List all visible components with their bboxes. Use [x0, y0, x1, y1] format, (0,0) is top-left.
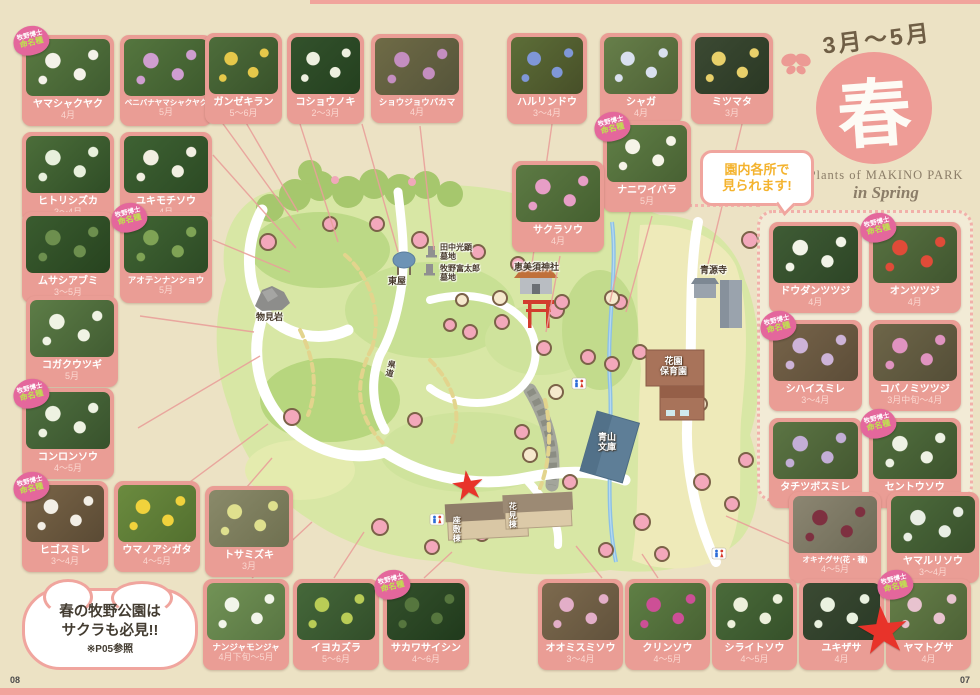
plant-months: 5月 — [124, 285, 208, 296]
plant-card-top_mid-1: コショウノキ2〜3月 — [287, 33, 364, 124]
plant-months: 3〜4月 — [26, 556, 104, 567]
group-tosamizuki: トサミズキ3月 — [205, 486, 293, 577]
plant-name: ドウダンツツジ — [773, 286, 858, 297]
plant-name: アオテンナンショウ — [124, 276, 208, 285]
plant-photo — [209, 490, 289, 547]
plant-card-shaga-1: ミツマタ3月 — [691, 33, 773, 124]
plant-name: シライトソウ — [716, 643, 793, 654]
star-marker-map: ★ — [447, 464, 488, 509]
plant-photo — [773, 226, 858, 283]
map-label-line: 牧野富太郎 — [440, 264, 480, 273]
plant-months: 5月 — [30, 371, 114, 382]
plant-card-top_left-0: 牧野博士命名種ヤマシャクヤク4月 — [22, 35, 114, 126]
plant-name: シハイスミレ — [773, 384, 858, 395]
group-haru: ハルリンドウ3〜4月 — [507, 33, 587, 124]
plant-card-haru-0: ハルリンドウ3〜4月 — [507, 33, 587, 124]
plant-name: タチツボスミレ — [773, 482, 858, 493]
plant-photo — [26, 216, 110, 273]
top-edge-strip — [310, 0, 980, 4]
plant-card-kogaku-0: コガクウツギ5月 — [26, 296, 118, 387]
plant-card-top_mid-0: ガンゼキラン5〜6月 — [205, 33, 282, 124]
plant-months: 5月 — [124, 107, 208, 118]
map-label-line: 墓地 — [440, 273, 480, 282]
star-marker-bottom: ★ — [851, 595, 915, 665]
plant-photo — [695, 37, 769, 94]
plant-months: 3〜4月 — [773, 395, 858, 406]
plant-photo — [297, 583, 375, 640]
plant-card-top_left-1: ベニバナヤマシャクヤク5月 — [120, 35, 212, 126]
group-right-panel: ドウダンツツジ4月牧野博士命名種オンツツジ4月牧野博士命名種シハイスミレ3〜4月… — [757, 210, 973, 502]
plant-months: 4〜6月 — [387, 654, 465, 665]
callout-line: サクラも必見!! — [62, 622, 159, 641]
plant-months: 3〜4月 — [511, 108, 583, 119]
plant-months: 4〜5月 — [793, 564, 877, 575]
plant-card-bottom_left-2: 牧野博士命名種サカワサイシン4〜6月 — [383, 579, 469, 670]
group-top-left: 牧野博士命名種ヤマシャクヤク4月ベニバナヤマシャクヤク5月ヒトリシズカ3〜4月ユ… — [22, 35, 212, 223]
group-sakuraso: サクラソウ4月 — [512, 161, 604, 252]
plant-name: ヤマルリソウ — [891, 556, 975, 567]
plant-months: 4月 — [26, 110, 110, 121]
subtitle-line1: Plants of MAKINO PARK — [796, 168, 976, 183]
plant-months: 4月 — [873, 297, 958, 308]
plant-photo — [793, 496, 877, 553]
plant-months: 4〜5月 — [629, 654, 706, 665]
group-shaga: シャガ4月ミツマタ3月 — [600, 33, 773, 124]
plant-photo — [118, 485, 196, 542]
plant-months: 4〜5月 — [716, 654, 793, 665]
plant-months: 2〜3月 — [291, 108, 360, 119]
plant-card-konron-0: 牧野博士命名種コンロンソウ4〜5月 — [22, 388, 114, 479]
plant-card-bottom_right-0: オオミスミソウ3〜4月 — [538, 579, 623, 670]
season-badge: 春 — [816, 52, 932, 164]
plant-name: ヒトリシズカ — [26, 196, 110, 207]
plant-photo — [542, 583, 619, 640]
plant-months: 5〜6月 — [209, 108, 278, 119]
plant-name: オオミスミソウ — [542, 643, 619, 654]
plant-photo — [629, 583, 706, 640]
map-label-line: 青山 — [598, 432, 616, 442]
map-label-tanaka-grave: 田中光顕 墓地 — [440, 243, 472, 261]
plant-card-shojo-0: ショウジョウバカマ4月 — [371, 34, 463, 123]
plant-name: ナニワイバラ — [607, 185, 687, 196]
plant-card-left_mid-0: ムサシアブミ3〜5月 — [22, 212, 114, 303]
plant-card-right_panel-2: 牧野博士命名種シハイスミレ3〜4月 — [769, 320, 862, 411]
plant-name: コショウノキ — [291, 97, 360, 108]
callout-line: 春の牧野公園は — [59, 603, 161, 622]
butterfly-icon — [780, 50, 812, 78]
plant-name: サクラソウ — [516, 225, 600, 236]
plant-months: 4月 — [773, 297, 858, 308]
plant-card-right_panel-3: コバノミツツジ3月中旬〜4月 — [869, 320, 962, 411]
plant-months: 5〜6月 — [297, 654, 375, 665]
plant-photo — [375, 38, 459, 95]
plant-card-sakuraso-0: サクラソウ4月 — [512, 161, 604, 252]
group-right-bottom: オキナグサ(花・種)4〜5月ヤマルリソウ3〜4月 — [789, 492, 979, 583]
plant-name: シャガ — [604, 97, 678, 108]
plant-name: ナンジャモンジャ — [207, 643, 285, 652]
plant-photo — [511, 37, 583, 94]
brochure-spread: { "header": { "period": "3月〜5月", "season… — [0, 0, 980, 695]
plant-card-left_mid-1: 牧野博士命名種アオテンナンショウ5月 — [120, 212, 212, 303]
callout-line: 園内各所で — [724, 162, 789, 178]
plant-months: 3月中旬〜4月 — [873, 395, 958, 406]
plant-name: セントウソウ — [873, 482, 958, 493]
map-label-ebisu-shrine: 恵美須神社 — [514, 262, 559, 272]
subtitle: Plants of MAKINO PARK in Spring — [796, 168, 976, 203]
group-bottom-left: ナンジャモンジャ4月下旬〜5月イヨカズラ5〜6月牧野博士命名種サカワサイシン4〜… — [203, 579, 469, 670]
bottom-edge-strip — [0, 688, 980, 695]
plant-card-bottom_left-1: イヨカズラ5〜6月 — [293, 579, 379, 670]
map-label-lookout-rock: 物見岩 — [256, 312, 283, 322]
callout-line: ※P05参照 — [87, 640, 133, 655]
group-naniwa: 牧野博士命名種ナニワイバラ5月 — [603, 121, 691, 212]
map-label-line: 墓地 — [440, 252, 472, 261]
group-left-bottom: 牧野博士命名種ヒゴスミレ3〜4月ウマノアシガタ4〜5月 — [22, 481, 200, 572]
group-konron: 牧野博士命名種コンロンソウ4〜5月 — [22, 388, 114, 479]
plant-card-naniwa-0: 牧野博士命名種ナニワイバラ5月 — [603, 121, 691, 212]
map-label-gazebo: 東屋 — [388, 276, 406, 286]
plant-name: ミツマタ — [695, 97, 769, 108]
plant-name: サカワサイシン — [387, 643, 465, 654]
map-label-nursery: 花園 保育園 — [660, 356, 687, 377]
plant-months: 4月 — [516, 236, 600, 247]
sakura-callout: 春の牧野公園は サクラも必見!! ※P05参照 — [22, 588, 198, 670]
plant-photo — [873, 324, 958, 381]
plant-name: ヒゴスミレ — [26, 545, 104, 556]
plant-photo — [26, 136, 110, 193]
plant-name: ウマノアシガタ — [118, 545, 196, 556]
plant-card-bottom_left-0: ナンジャモンジャ4月下旬〜5月 — [203, 579, 289, 670]
plant-name: イヨカズラ — [297, 643, 375, 654]
plant-card-bottom_right-1: クリンソウ4〜5月 — [625, 579, 710, 670]
map-label-makino-grave: 牧野富太郎 墓地 — [440, 264, 480, 282]
group-left-mid: ムサシアブミ3〜5月牧野博士命名種アオテンナンショウ5月 — [22, 212, 212, 303]
everywhere-callout: 園内各所で 見られます! — [700, 150, 814, 206]
plant-months: 4月下旬〜5月 — [207, 652, 285, 663]
plant-months: 3月 — [695, 108, 769, 119]
plant-name: オキナグサ(花・種) — [793, 556, 877, 564]
plant-name: コバノミツツジ — [873, 384, 958, 395]
page-number-left: 08 — [10, 675, 20, 685]
plant-photo — [291, 37, 360, 94]
map-label-hanami: 花見棟 — [508, 502, 517, 529]
plant-months: 5月 — [607, 196, 687, 207]
plant-months: 4〜5月 — [118, 556, 196, 567]
group-shojo: ショウジョウバカマ4月 — [371, 34, 463, 123]
map-label-line: 田中光顕 — [440, 243, 472, 252]
map-label-line: 花園 — [660, 356, 687, 366]
plant-photo — [207, 583, 285, 640]
map-label-line: 文庫 — [598, 442, 616, 452]
plant-photo — [516, 165, 600, 222]
page-number-right: 07 — [960, 675, 970, 685]
plant-photo — [209, 37, 278, 94]
map-label-bunko: 青山 文庫 — [598, 432, 616, 453]
plant-photo — [773, 422, 858, 479]
plant-card-left_bottom-1: ウマノアシガタ4〜5月 — [114, 481, 200, 572]
plant-card-tosamizuki-0: トサミズキ3月 — [205, 486, 293, 577]
plant-card-bottom_right-2: シライトソウ4〜5月 — [712, 579, 797, 670]
subtitle-line2: in Spring — [796, 183, 976, 203]
plant-name: ベニバナヤマシャクヤク — [124, 99, 208, 107]
plant-name: ムサシアブミ — [26, 276, 110, 287]
group-kogaku: コガクウツギ5月 — [26, 296, 118, 387]
plant-photo — [891, 496, 975, 553]
plant-name: コンロンソウ — [26, 452, 110, 463]
plant-name: ガンゼキラン — [209, 97, 278, 108]
season-character: 春 — [833, 52, 914, 164]
plant-name: トサミズキ — [209, 550, 289, 561]
plant-name: オンツツジ — [873, 286, 958, 297]
plant-photo — [716, 583, 793, 640]
plant-photo — [124, 39, 208, 96]
plant-photo — [124, 136, 208, 193]
plant-months: 3〜4月 — [542, 654, 619, 665]
plant-name: コガクウツギ — [30, 360, 114, 371]
map-label-line: 保育園 — [660, 366, 687, 376]
plant-months: 4月 — [375, 107, 459, 118]
map-label-seigenji: 青源寺 — [700, 265, 727, 275]
plant-name: ショウジョウバカマ — [375, 98, 459, 107]
plant-name: クリンソウ — [629, 643, 706, 654]
plant-card-shaga-0: シャガ4月 — [600, 33, 682, 124]
callout-line: 見られます! — [722, 178, 791, 194]
map-label-zashiki: 座敷棟 — [452, 516, 461, 543]
plant-card-top_left-2: ヒトリシズカ3〜4月 — [22, 132, 114, 223]
plant-card-left_bottom-0: 牧野博士命名種ヒゴスミレ3〜4月 — [22, 481, 108, 572]
plant-card-right_panel-1: 牧野博士命名種オンツツジ4月 — [869, 222, 962, 313]
plant-name: ハルリンドウ — [511, 97, 583, 108]
plant-months: 3月 — [209, 561, 289, 572]
plant-photo — [30, 300, 114, 357]
plant-card-right_panel-0: ドウダンツツジ4月 — [769, 222, 862, 313]
plant-photo — [604, 37, 678, 94]
plant-name: ヤマシャクヤク — [26, 99, 110, 110]
group-top-mid: ガンゼキラン5〜6月コショウノキ2〜3月 — [205, 33, 364, 124]
plant-card-right_bottom-0: オキナグサ(花・種)4〜5月 — [789, 492, 881, 583]
